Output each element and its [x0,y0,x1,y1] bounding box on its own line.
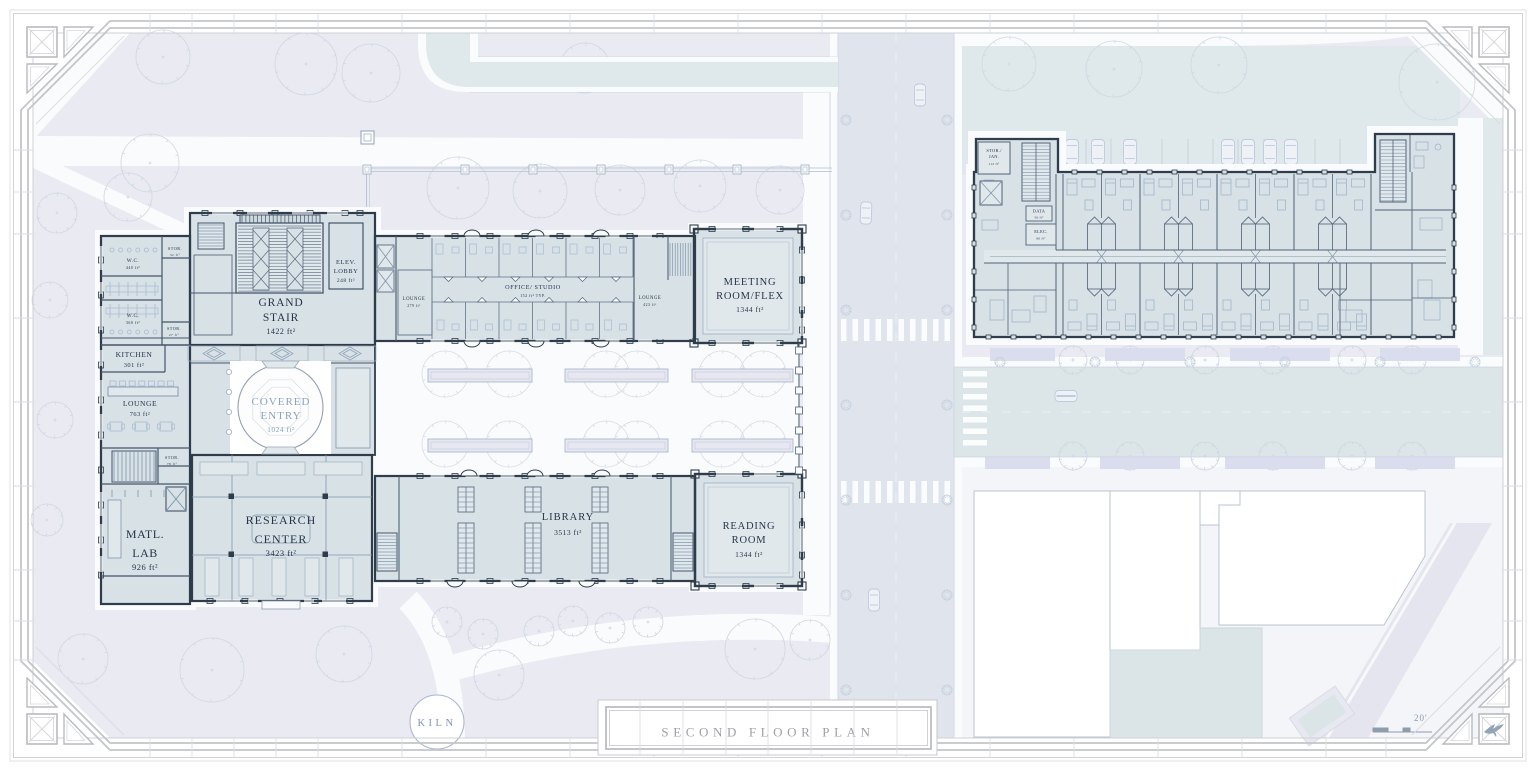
svg-text:60 ft²: 60 ft² [1036,237,1045,241]
svg-text:360 ft²: 360 ft² [126,320,140,325]
svg-text:3423 ft²: 3423 ft² [266,548,297,558]
svg-text:KILN: KILN [417,718,456,729]
svg-text:ENTRY: ENTRY [260,410,301,422]
svg-text:440 ft²: 440 ft² [126,265,140,270]
svg-text:LOBBY: LOBBY [334,268,359,275]
svg-text:56 ft²: 56 ft² [1034,216,1043,220]
svg-text:STAIR: STAIR [263,312,299,324]
svg-text:GRAND: GRAND [259,297,304,309]
svg-text:763 ft²: 763 ft² [130,411,151,418]
svg-text:STOR.: STOR. [165,455,179,460]
svg-text:LIBRARY: LIBRARY [542,512,595,523]
svg-text:READING: READING [723,521,776,532]
svg-text:926 ft²: 926 ft² [132,562,158,572]
svg-text:LOUNGE: LOUNGE [123,399,157,408]
svg-text:W.C.: W.C. [127,313,139,319]
svg-text:MATL.: MATL. [126,527,164,541]
svg-text:RESEARCH: RESEARCH [246,513,317,527]
svg-text:279 ft²: 279 ft² [407,304,421,308]
svg-text:248 ft²: 248 ft² [337,277,355,284]
svg-text:1344 ft²: 1344 ft² [735,550,763,559]
svg-text:ROOM: ROOM [732,535,767,546]
svg-text:STOR./: STOR./ [986,148,1002,153]
svg-text:301 ft²: 301 ft² [124,362,145,369]
svg-text:ELEC.: ELEC. [1034,229,1048,234]
svg-text:STOR.: STOR. [168,246,182,251]
svg-text:COVERED: COVERED [252,396,311,408]
svg-text:OFFICE/ STUDIO: OFFICE/ STUDIO [505,284,561,291]
svg-text:ROOM/FLEX: ROOM/FLEX [716,291,784,302]
svg-text:423 ft²: 423 ft² [643,303,657,307]
svg-text:LOUNGE: LOUNGE [639,296,662,301]
svg-text:1344 ft²: 1344 ft² [736,305,764,314]
svg-text:3513 ft²: 3513 ft² [554,528,582,537]
svg-text:CENTER: CENTER [255,532,308,546]
svg-text:MEETING: MEETING [724,277,777,288]
svg-text:32 ft²: 32 ft² [170,253,180,257]
svg-text:KITCHEN: KITCHEN [116,350,153,359]
svg-text:LAB: LAB [132,546,158,560]
svg-text:JAN.: JAN. [989,154,999,159]
svg-text:ELEV.: ELEV. [336,259,356,266]
svg-text:DATA: DATA [1033,209,1046,214]
svg-text:112 ft²: 112 ft² [989,162,1000,166]
svg-text:78 ft²: 78 ft² [167,462,177,466]
svg-text:27 ft²: 27 ft² [169,333,179,337]
svg-text:STOR.: STOR. [167,326,181,331]
svg-text:1024 ft²: 1024 ft² [267,425,295,434]
svg-text:1422 ft²: 1422 ft² [266,327,295,336]
svg-text:W.C.: W.C. [127,258,139,264]
svg-text:LOUNGE: LOUNGE [403,297,426,302]
svg-text:152 ft² TYP.: 152 ft² TYP. [520,293,546,298]
